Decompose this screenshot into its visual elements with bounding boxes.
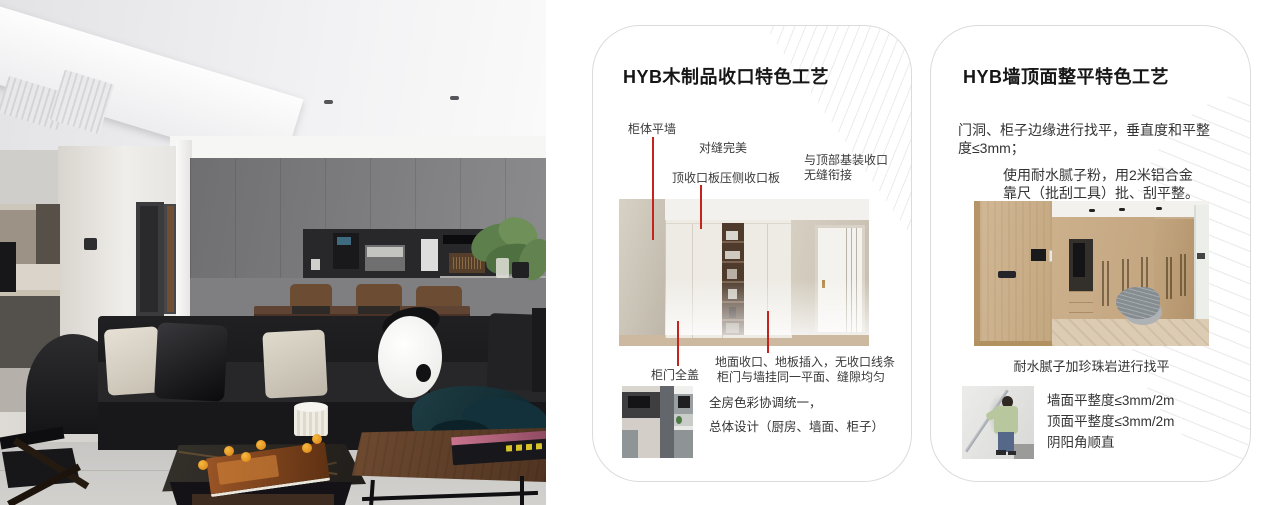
wood-door-edge [167,206,174,312]
handle-groove [1102,261,1104,306]
kumquat [256,440,266,450]
kitchen-thumb-photo [622,386,693,458]
callout-top-joint-line2: 无缝衔接 [804,166,852,183]
card-wood-trim-craft: HYB木制品收口特色工艺 柜体平墙 对缝完美 顶收口板压侧收口板 与顶部基装收口… [592,25,912,482]
render-caption: 耐水腻子加珍珠岩进行找平 [974,356,1209,375]
handle-groove [1180,254,1182,296]
downlight [324,100,333,104]
thumb-plant [676,416,682,424]
living-room-photo [0,0,546,505]
thumb-lower-cab [674,430,693,458]
cups [367,247,403,257]
thumb-kitchen-ceiling [674,386,693,394]
mug-rim [294,402,328,412]
hall-downlight [1089,209,1095,212]
kumquat [198,460,208,470]
para1-line1: 门洞、柜子边缘进行找平，垂直度和平整 [958,120,1210,140]
hall-hidden-door [980,201,1052,341]
cup [311,259,320,270]
door-sticker [1197,253,1205,259]
para2-line2: 靠尺（批刮工具）批、刮平整。 [1003,183,1199,203]
plant-pot [512,262,529,278]
skirting [974,341,1052,346]
pillow-beige [104,326,162,396]
card2-title: HYB墙顶面整平特色工艺 [963,63,1169,89]
floor-note-line2: 柜门与墙挂同一平面、缝隙均匀 [717,368,885,385]
shelf-item [726,231,738,240]
color-note-line2: 总体设计（厨房、墙面、柜子） [709,416,884,435]
drawer-line [1069,312,1093,313]
handle-groove [1166,257,1168,299]
herringbone [1052,319,1209,346]
plant-vase [496,258,509,278]
niche-drawers [1069,291,1093,322]
card1-title: HYB木制品收口特色工艺 [623,63,829,89]
pillow-dark [532,308,546,392]
dining-chair [290,284,332,306]
knit-texture [1116,287,1160,319]
downlight [450,96,459,100]
kumquat [302,443,312,453]
thumb-tv [628,396,650,408]
thumb-column [660,386,674,458]
spec-corners: 阴阳角顺直 [1047,431,1115,451]
hall-downlight [1156,207,1162,210]
coffee-machine [0,242,16,292]
wood-hallway-photo [974,201,1209,346]
callout-top-board: 顶收口板压侧收口板 [672,169,780,186]
handle-groove [1170,257,1172,299]
shelf-item [727,269,737,279]
spec-ceiling-flatness: 顶面平整度≤3mm/2m [1047,410,1174,430]
worker-jeans [998,432,1014,452]
card-wall-leveling-craft: HYB墙顶面整平特色工艺 门洞、柜子边缘进行找平，垂直度和平整 度≤3mm； 使… [930,25,1251,482]
panda-face [378,316,442,398]
callout-line [677,321,679,366]
handle-groove [1184,254,1186,296]
hall-downlight [1119,208,1125,211]
door-handle [998,271,1016,278]
render-left-wall [619,199,665,335]
brochure-page: HYB木制品收口特色工艺 柜体平墙 对缝完美 顶收口板压侧收口板 与顶部基装收口… [0,0,1280,505]
pillow-beige [262,329,327,398]
dining-chair [356,284,402,306]
hall-ceiling [1044,201,1209,217]
lounge-chair-bar [0,427,65,450]
light-switch [84,238,97,250]
worker-jacket [994,406,1018,434]
floor-corner [1014,444,1034,459]
open-door-inner [140,206,158,312]
worker-shoe [1008,451,1016,455]
spec-wall-flatness: 墙面平整度≤3mm/2m [1047,389,1174,409]
callout-perfect-seam: 对缝完美 [699,139,747,156]
dining-chair [416,286,462,306]
callout-cabinet-flush-wall: 柜体平墙 [628,120,676,137]
worker-shoe [996,450,1006,455]
shelf-item [725,251,740,259]
shelf [722,261,744,263]
pillow-black [154,322,228,402]
panda-eye [416,364,431,382]
drawer-line [1069,302,1093,303]
kumquat [241,452,251,462]
callout-line [767,311,769,353]
niche-recess [1069,239,1093,291]
appliance-niche [303,229,496,278]
wardrobe-render [619,199,869,346]
upper-cabinet-dark [36,204,60,266]
control-panel [1031,249,1046,261]
magazine-2-title [506,443,542,451]
thumb-appliance [678,396,690,408]
lounge-chair [0,430,92,505]
kumquat [224,446,234,456]
wood-grain [980,201,1052,341]
espresso-screen [337,237,351,245]
thumb-sofa [622,430,638,458]
hanging-coat [1073,243,1085,277]
handle-groove [1107,261,1109,306]
knit-throw [1116,287,1160,319]
para2-line1: 使用耐水腻子粉，用2米铝合金 [1003,165,1193,185]
callout-door-full-cover: 柜门全盖 [651,366,699,383]
hall-floor [1052,319,1209,346]
kumquat [312,434,322,444]
capsule-machine [421,239,438,271]
para1-line2: 度≤3mm； [958,138,1025,158]
worker-thumb-photo [962,386,1034,459]
shelf [722,241,744,243]
dining-chair-seat [292,306,330,314]
callout-line [700,185,702,229]
panda-cushion [378,308,448,400]
color-note-line1: 全房色彩协调统一， [709,392,822,411]
callout-line [652,137,654,240]
